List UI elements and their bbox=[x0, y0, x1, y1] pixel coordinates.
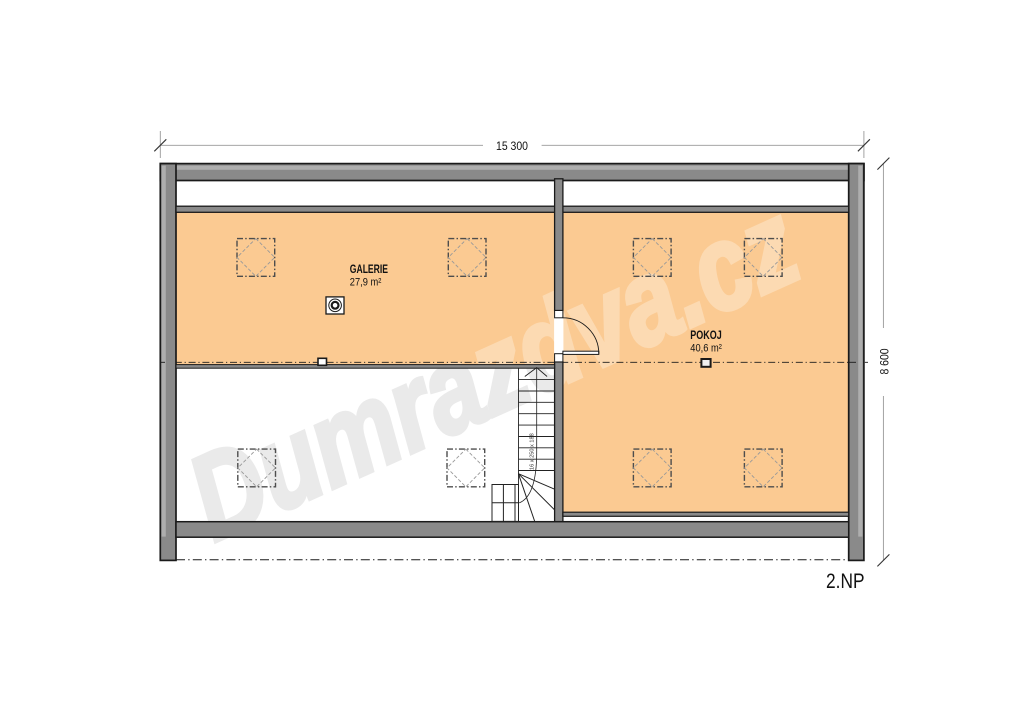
svg-text:POKOJ: POKOJ bbox=[690, 328, 722, 342]
svg-text:GALERIE: GALERIE bbox=[350, 262, 388, 276]
svg-text:16 x 250 x 188: 16 x 250 x 188 bbox=[530, 433, 536, 470]
svg-text:27,9 m²: 27,9 m² bbox=[350, 277, 382, 289]
svg-text:15 300: 15 300 bbox=[496, 139, 528, 153]
svg-text:2.NP: 2.NP bbox=[826, 570, 865, 593]
svg-text:40,6 m²: 40,6 m² bbox=[690, 343, 722, 355]
svg-text:8 600: 8 600 bbox=[877, 348, 891, 374]
